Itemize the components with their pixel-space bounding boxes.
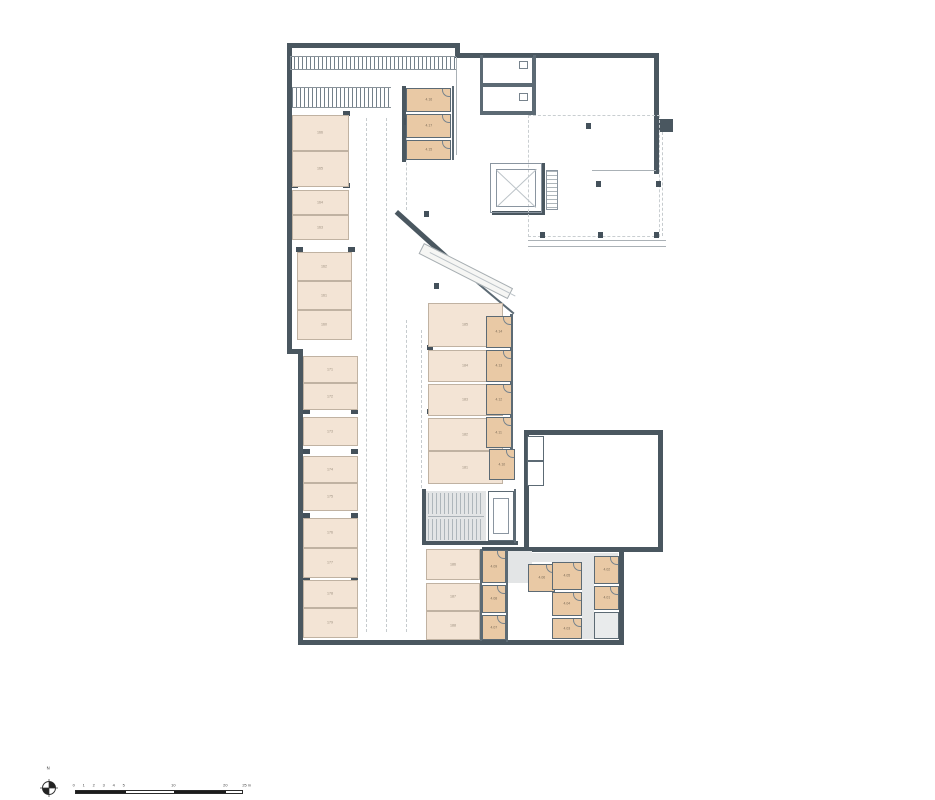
door-swing-arc (610, 587, 618, 595)
door-swing-arc (573, 563, 581, 571)
scale-end-label: 25 m (242, 784, 251, 788)
storage-room: 4.01 (594, 586, 619, 610)
parking-space-label: 165 (317, 167, 323, 171)
parking-space: 186 (426, 549, 480, 580)
parking-space: 171 (303, 356, 358, 383)
parking-space: 188 (426, 611, 480, 640)
scale-far-label: 20 (223, 784, 227, 788)
wall-segment (524, 430, 663, 435)
parking-space: 164 (292, 190, 349, 215)
storage-room: 4.07 (482, 615, 506, 640)
parking-space-label: 174 (327, 468, 333, 472)
parking-space-label: 183 (462, 398, 468, 402)
partition-wall (533, 55, 536, 115)
parking-space: 172 (303, 383, 358, 410)
parking-space-label: 179 (327, 621, 333, 625)
storage-room: 4.10 (489, 449, 515, 480)
structural-column (598, 232, 603, 238)
door-swing-arc (497, 551, 505, 559)
parking-space-label: 177 (327, 561, 333, 565)
reference-line (528, 240, 666, 241)
reference-line (528, 246, 666, 247)
parking-space-label: 188 (450, 624, 456, 628)
storage-room-label: 4.12 (496, 398, 503, 401)
scale-unit-label: 3 (103, 784, 105, 788)
toilet-fixture (519, 61, 528, 69)
parking-space: 179 (303, 608, 358, 638)
storage-room: 4.11 (486, 417, 512, 448)
structural-column (586, 123, 591, 129)
stair-landing-line (428, 516, 484, 517)
structural-column (654, 232, 659, 238)
door-swing-arc (442, 89, 450, 97)
storage-room-label: 4.04 (564, 602, 571, 605)
storage-room-label: 4.14 (496, 330, 503, 333)
technical-room (594, 612, 619, 639)
structural-column (434, 283, 439, 289)
storage-room-label: 4.17 (425, 124, 432, 127)
storage-room: 4.17 (406, 114, 451, 138)
storage-room-label: 4.08 (491, 597, 498, 600)
wall-segment (658, 430, 663, 552)
parking-space: 173 (303, 417, 358, 446)
storage-room-label: 4.05 (564, 574, 571, 577)
north-label: N (47, 767, 50, 771)
storage-room: 4.08 (482, 585, 506, 613)
stair-flight (428, 493, 484, 514)
floor-plan: N 16616516416316216116017117217317417517… (0, 0, 935, 800)
storage-room: 4.06 (528, 564, 555, 592)
scale-unit-label: 4 (113, 784, 115, 788)
storage-room-label: 4.03 (564, 627, 571, 630)
parking-space: 162 (297, 252, 352, 281)
wall-segment (422, 541, 518, 545)
storage-room: 4.14 (486, 316, 512, 348)
aisle-dashed-line (406, 320, 407, 632)
scale-bar-segment (116, 791, 126, 793)
parking-space: 165 (292, 151, 349, 187)
bike-rack-hatch-area (290, 56, 456, 70)
scale-bar-segment (76, 791, 86, 793)
door-swing-arc (497, 616, 505, 624)
stair-flight (428, 519, 484, 540)
storage-room-label: 4.09 (491, 565, 498, 568)
door-swing-arc (442, 141, 450, 149)
parking-space: 178 (303, 580, 358, 608)
utility-cell (527, 461, 544, 486)
scale-unit-label: 2 (93, 784, 95, 788)
scale-unit-label: 0 (73, 784, 75, 788)
parking-space: 160 (297, 310, 352, 340)
parking-space-label: 173 (327, 430, 333, 434)
scale-bar-segment (174, 791, 226, 793)
parking-space-label: 178 (327, 592, 333, 596)
parking-space-label: 162 (321, 265, 327, 269)
structural-column (656, 181, 661, 187)
structural-column (424, 211, 429, 217)
storage-room-label: 4.16 (425, 98, 432, 101)
reference-line (592, 170, 656, 171)
door-swing-arc (506, 450, 514, 458)
parking-space-label: 161 (321, 294, 327, 298)
storage-room-label: 4.07 (491, 626, 498, 629)
parking-space: 177 (303, 548, 358, 578)
scale-bar (75, 790, 243, 794)
parking-space-label: 187 (450, 595, 456, 599)
wall-segment (619, 548, 624, 645)
parking-space: 161 (297, 281, 352, 310)
parking-space-label: 171 (327, 368, 333, 372)
partition-wall (452, 86, 454, 160)
parking-space-label: 172 (327, 395, 333, 399)
parking-space-label: 175 (327, 495, 333, 499)
storage-room: 4.09 (482, 550, 506, 583)
utility-cell (527, 436, 544, 461)
door-swing-arc (573, 593, 581, 601)
scale-bar-segment (106, 791, 116, 793)
wall-segment (298, 640, 624, 645)
scale-bar-segment (96, 791, 106, 793)
storage-room: 4.13 (486, 350, 512, 382)
scale-unit-label: 1 (83, 784, 85, 788)
structural-column (596, 181, 601, 187)
parking-space-label: 181 (462, 466, 468, 470)
storage-room-label: 4.06 (538, 576, 545, 579)
parking-space-label: 182 (462, 433, 468, 437)
storage-room-label: 4.01 (603, 596, 610, 599)
door-swing-arc (503, 351, 511, 359)
storage-room-label: 4.10 (499, 463, 506, 466)
parking-space: 175 (303, 483, 358, 511)
door-swing-arc (503, 418, 511, 426)
parking-space-label: 176 (327, 531, 333, 535)
scale-bar-segment (86, 791, 96, 793)
structural-column (303, 449, 310, 454)
storage-room: 4.05 (552, 562, 582, 590)
structural-column (540, 232, 545, 238)
parking-space-label: 184 (462, 364, 468, 368)
parking-space: 163 (292, 215, 349, 240)
parking-space-label: 163 (317, 226, 323, 230)
elevator-car (493, 498, 509, 534)
aisle-dashed-line (366, 118, 367, 632)
aisle-dashed-line (421, 330, 422, 488)
partition-wall (514, 489, 516, 543)
reference-line (456, 57, 457, 155)
parking-space-label: 185 (462, 323, 468, 327)
parking-space: 174 (303, 456, 358, 483)
storage-room: 4.16 (406, 88, 451, 112)
storage-room-label: 4.13 (496, 364, 503, 367)
parking-space: 176 (303, 518, 358, 548)
corridor (582, 561, 594, 639)
door-swing-arc (442, 115, 450, 123)
aisle-dashed-line (662, 132, 663, 236)
parking-space-label: 164 (317, 201, 323, 205)
storage-room-label: 4.15 (425, 148, 432, 151)
wall-segment (287, 43, 459, 48)
toilet-fixture (519, 93, 528, 101)
door-swing-arc (610, 557, 618, 565)
storage-room: 4.03 (552, 618, 582, 639)
north-arrow-icon (38, 772, 60, 798)
parking-space-label: 160 (321, 323, 327, 327)
door-swing-arc (497, 586, 505, 594)
scale-mid-label: 10 (171, 784, 175, 788)
door-swing-arc (503, 385, 511, 393)
door-swing-arc (573, 619, 581, 627)
storage-room-label: 4.02 (603, 568, 610, 571)
parking-space: 187 (426, 583, 480, 611)
storage-room: 4.15 (406, 140, 451, 160)
parking-space: 166 (292, 115, 349, 151)
structural-column (351, 449, 358, 454)
bike-rack-hatch-area (292, 87, 391, 108)
ladder-shaft (546, 170, 558, 210)
aisle-dashed-line (386, 118, 387, 632)
parking-space-label: 186 (450, 563, 456, 567)
door-swing-arc (503, 317, 511, 325)
ramp-centerline (430, 252, 516, 296)
storage-room: 4.02 (594, 556, 619, 584)
storage-room: 4.04 (552, 592, 582, 616)
storage-room: 4.12 (486, 384, 512, 415)
scale-unit-label: 5 (123, 784, 125, 788)
storage-room-label: 4.11 (496, 431, 503, 434)
parking-space-label: 166 (317, 131, 323, 135)
